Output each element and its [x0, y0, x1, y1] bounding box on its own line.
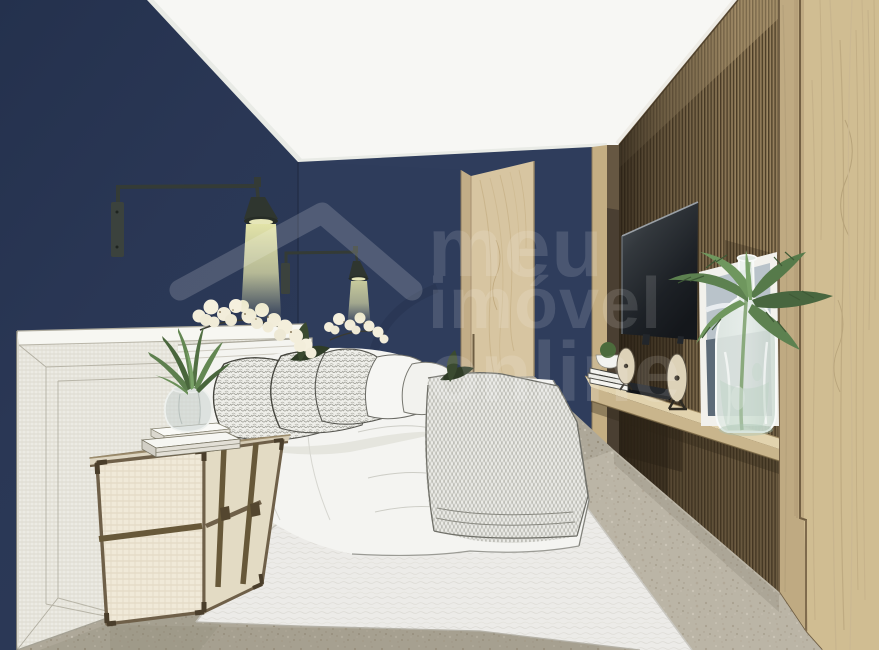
svg-text:online: online [428, 325, 681, 419]
